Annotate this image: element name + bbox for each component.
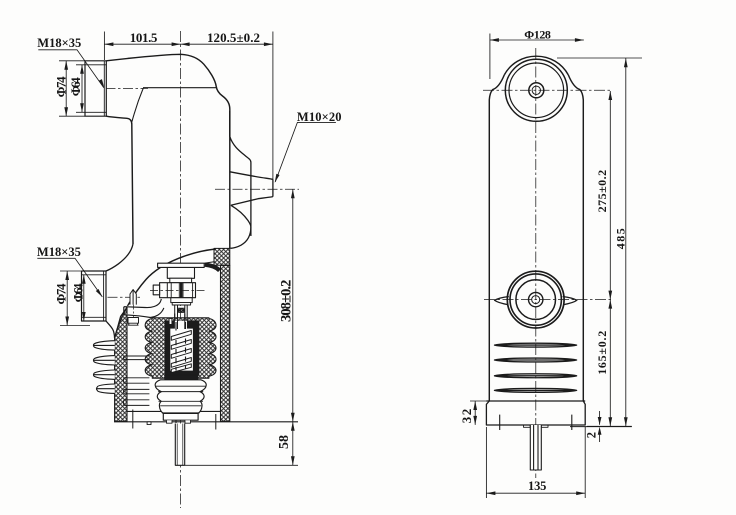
svg-text:M10×20: M10×20 (297, 110, 342, 124)
svg-text:Φ64: Φ64 (71, 283, 86, 303)
svg-text:58: 58 (277, 435, 292, 449)
svg-text:M18×35: M18×35 (37, 36, 81, 50)
svg-text:275±0.2: 275±0.2 (595, 170, 609, 212)
svg-text:M18×35: M18×35 (37, 245, 81, 259)
svg-text:2: 2 (585, 432, 599, 438)
svg-text:32: 32 (459, 409, 474, 424)
svg-text:Φ74: Φ74 (53, 76, 68, 98)
svg-text:135: 135 (528, 479, 546, 493)
svg-text:485: 485 (614, 228, 628, 249)
svg-text:101.5: 101.5 (130, 30, 158, 45)
svg-text:Φ128: Φ128 (524, 28, 551, 42)
svg-text:120.5±0.2: 120.5±0.2 (207, 30, 260, 45)
svg-text:165±0.2: 165±0.2 (595, 331, 609, 375)
svg-text:308±0.2: 308±0.2 (279, 280, 295, 322)
svg-text:Φ74: Φ74 (54, 283, 69, 305)
svg-text:Φ64: Φ64 (68, 77, 83, 97)
